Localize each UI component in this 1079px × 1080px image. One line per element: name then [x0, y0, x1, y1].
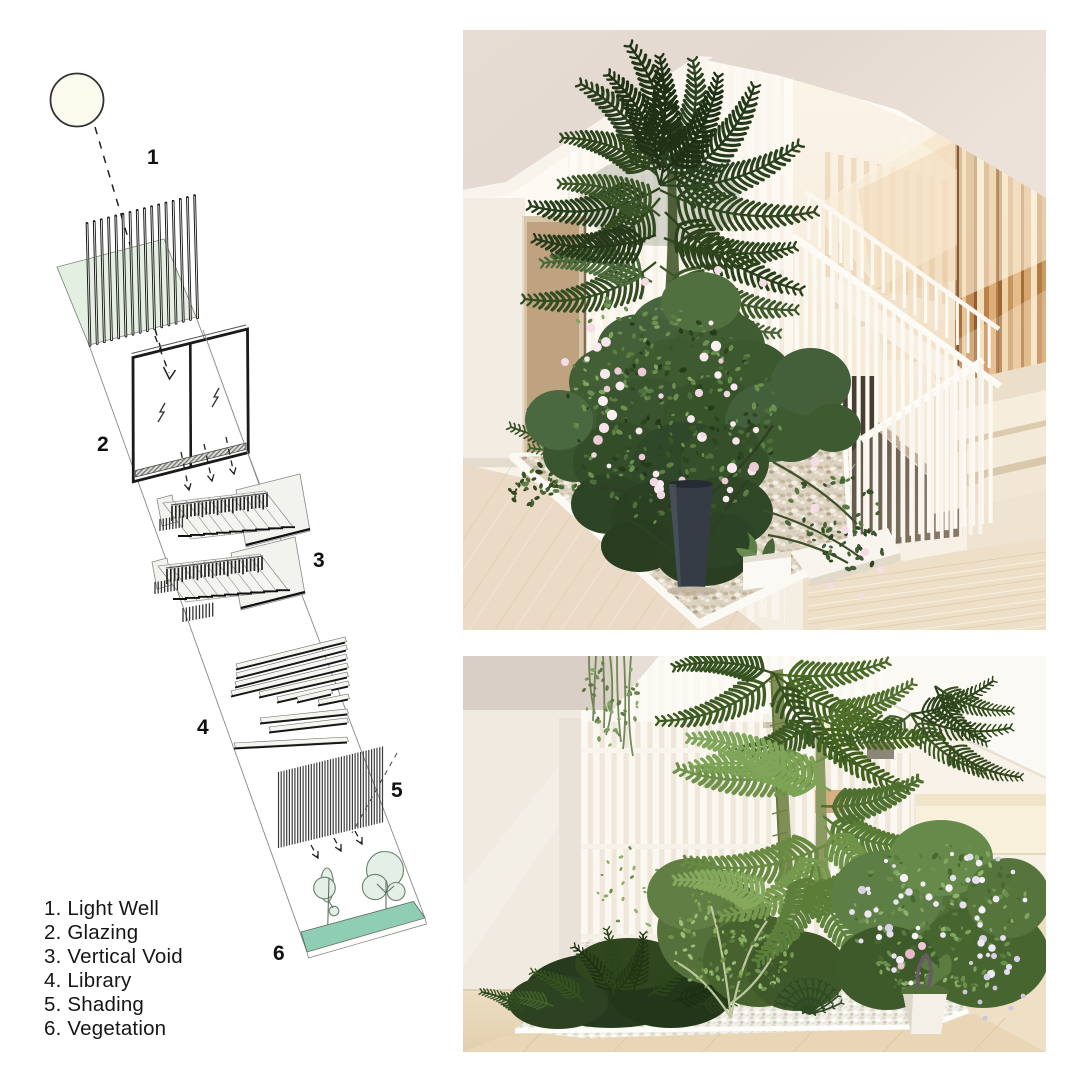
svg-text:6: 6	[273, 942, 285, 965]
svg-text:4: 4	[197, 716, 209, 739]
svg-text:3: 3	[313, 549, 325, 572]
svg-text:2: 2	[97, 433, 109, 456]
svg-text:5: 5	[391, 779, 403, 802]
svg-text:1: 1	[147, 146, 159, 169]
